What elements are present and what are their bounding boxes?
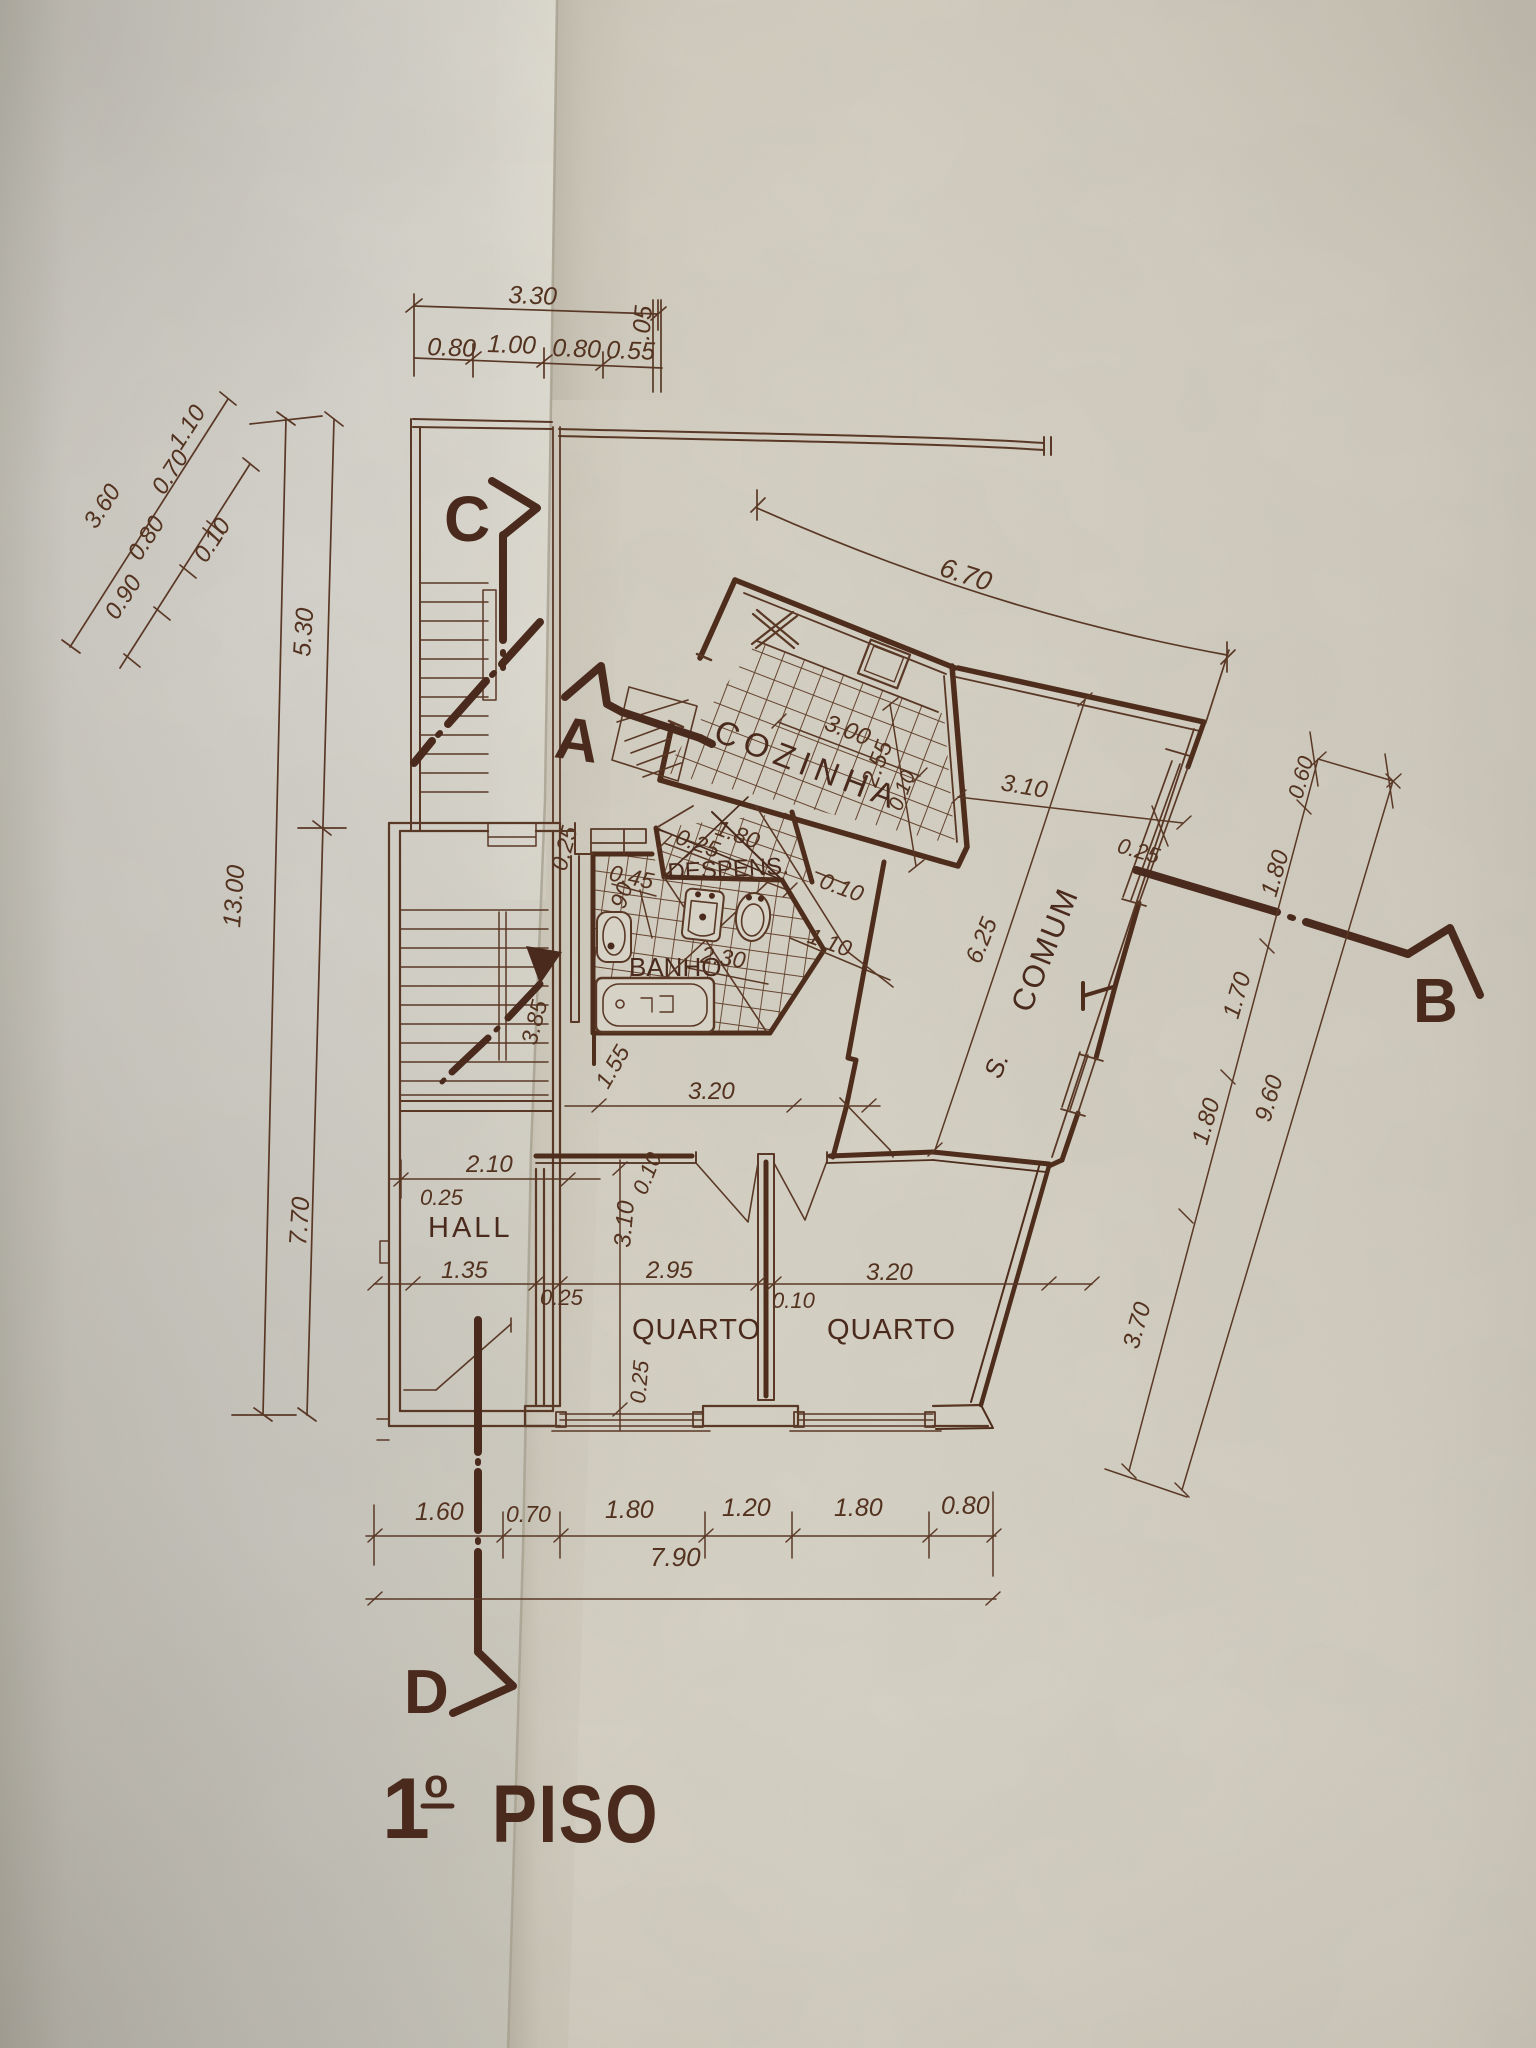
svg-text:QUARTO: QUARTO [632, 1314, 761, 1346]
svg-text:3.20: 3.20 [688, 1078, 735, 1105]
svg-text:3.20: 3.20 [866, 1259, 913, 1286]
svg-text:PISO: PISO [492, 1768, 659, 1860]
svg-text:0.10: 0.10 [772, 1288, 816, 1313]
svg-text:0.25: 0.25 [420, 1185, 464, 1210]
svg-text:13.00: 13.00 [218, 864, 250, 928]
svg-text:3.10: 3.10 [609, 1199, 640, 1249]
svg-text:C: C [444, 483, 490, 555]
svg-text:7.90: 7.90 [650, 1542, 701, 1572]
svg-text:0.25: 0.25 [540, 1285, 584, 1310]
svg-text:0.70: 0.70 [506, 1501, 551, 1527]
svg-text:0.80: 0.80 [941, 1492, 990, 1520]
svg-text:3.30: 3.30 [508, 281, 558, 311]
svg-text:2.10: 2.10 [465, 1151, 513, 1178]
svg-text:HALL: HALL [428, 1212, 513, 1244]
svg-text:o: o [424, 1762, 448, 1806]
svg-text:1.80: 1.80 [834, 1494, 883, 1522]
svg-text:1.60: 1.60 [415, 1498, 464, 1526]
svg-text:QUARTO: QUARTO [827, 1314, 956, 1346]
svg-text:B: B [1413, 967, 1458, 1036]
svg-text:.05: .05 [627, 304, 658, 341]
svg-text:1.00: 1.00 [487, 330, 537, 360]
svg-text:5.30: 5.30 [288, 607, 319, 658]
svg-text:1.20: 1.20 [722, 1494, 771, 1522]
svg-text:1.35: 1.35 [441, 1257, 488, 1284]
svg-text:A: A [551, 704, 603, 776]
svg-text:0.25: 0.25 [625, 1359, 654, 1405]
svg-text:1: 1 [382, 1761, 430, 1857]
svg-text:2.95: 2.95 [645, 1257, 693, 1284]
svg-text:D: D [404, 1658, 449, 1727]
svg-text:1.80: 1.80 [605, 1496, 654, 1524]
svg-text:0.80: 0.80 [427, 333, 477, 363]
svg-text:0.80: 0.80 [552, 334, 602, 364]
svg-text:7.70: 7.70 [284, 1196, 315, 1247]
